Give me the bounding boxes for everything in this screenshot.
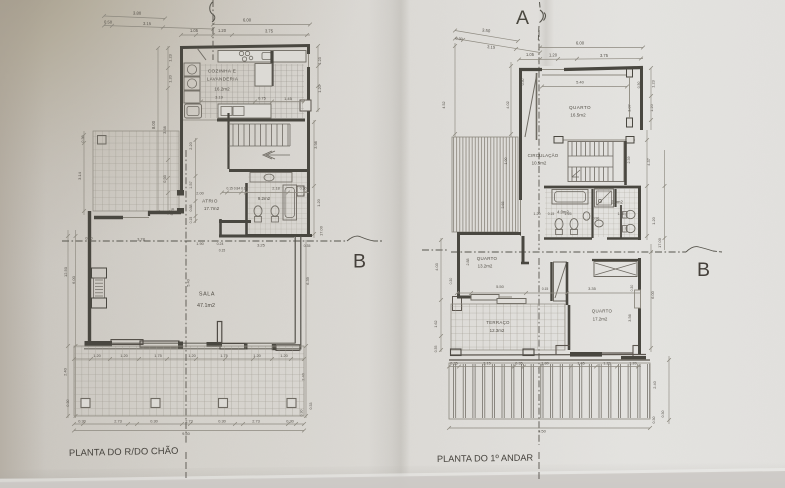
svg-text:0.93: 0.93 <box>162 175 167 183</box>
svg-text:0.24: 0.24 <box>217 242 224 246</box>
svg-text:0.30: 0.30 <box>455 37 463 42</box>
svg-text:1.20: 1.20 <box>316 198 321 206</box>
svg-text:3.50: 3.50 <box>482 28 491 34</box>
svg-text:3.15: 3.15 <box>483 362 490 366</box>
svg-text:12.50: 12.50 <box>63 266 68 277</box>
svg-text:3.15: 3.15 <box>487 44 496 50</box>
svg-text:QUARTO: QUARTO <box>592 309 613 314</box>
svg-text:9.2m2: 9.2m2 <box>258 196 271 201</box>
svg-text:3.07: 3.07 <box>628 104 632 111</box>
svg-text:0.15 0.84 0.15: 0.15 0.84 0.15 <box>226 187 247 191</box>
svg-text:1.75: 1.75 <box>220 353 228 358</box>
svg-text:TERRAÇO: TERRAÇO <box>486 320 510 325</box>
svg-text:12.3m2: 12.3m2 <box>490 328 505 333</box>
svg-text:3.80: 3.80 <box>133 10 142 15</box>
svg-text:1.20: 1.20 <box>651 216 656 224</box>
svg-text:1.20: 1.20 <box>629 362 636 366</box>
svg-text:0.15: 0.15 <box>219 249 226 253</box>
svg-text:1.45: 1.45 <box>284 96 293 101</box>
svg-text:17.7m2: 17.7m2 <box>204 206 220 211</box>
svg-text:1.20: 1.20 <box>549 53 558 58</box>
svg-text:1.20: 1.20 <box>533 212 540 216</box>
svg-text:1.62: 1.62 <box>434 320 438 327</box>
svg-text:3.75: 3.75 <box>600 53 609 58</box>
svg-text:1.20: 1.20 <box>603 362 610 366</box>
svg-text:B: B <box>697 259 710 281</box>
svg-text:1.23: 1.23 <box>168 54 173 62</box>
svg-text:1.57: 1.57 <box>189 181 193 188</box>
svg-text:3.98: 3.98 <box>313 141 318 149</box>
svg-text:17.00: 17.00 <box>319 225 324 236</box>
svg-text:1.20: 1.20 <box>93 353 101 358</box>
svg-text:2.0m2: 2.0m2 <box>611 200 623 205</box>
svg-text:0.30: 0.30 <box>300 187 307 191</box>
svg-text:2.39: 2.39 <box>627 157 631 164</box>
svg-text:10.5m2: 10.5m2 <box>532 161 547 166</box>
svg-text:1.25: 1.25 <box>564 212 571 216</box>
svg-text:COZINHA E: COZINHA E <box>208 69 236 74</box>
svg-text:1.45: 1.45 <box>577 362 584 366</box>
svg-text:2.73: 2.73 <box>114 419 122 424</box>
svg-text:1.20: 1.20 <box>168 74 173 82</box>
svg-text:0.30: 0.30 <box>630 285 634 292</box>
svg-text:6.39: 6.39 <box>305 277 310 285</box>
svg-text:4.52: 4.52 <box>442 101 446 108</box>
svg-text:13.2m2: 13.2m2 <box>478 264 493 269</box>
svg-text:3.14: 3.14 <box>77 171 82 180</box>
svg-text:0.15: 0.15 <box>189 217 193 224</box>
svg-text:0.30: 0.30 <box>150 419 158 424</box>
svg-text:CIRCULAÇÃO: CIRCULAÇÃO <box>528 153 559 158</box>
svg-text:1.20: 1.20 <box>317 84 322 92</box>
svg-text:A: A <box>516 7 529 29</box>
svg-text:4.03: 4.03 <box>434 263 439 271</box>
svg-text:0.30: 0.30 <box>218 419 226 424</box>
svg-text:2.18: 2.18 <box>272 187 279 191</box>
svg-text:QUARTO: QUARTO <box>569 105 591 110</box>
svg-text:0.30: 0.30 <box>652 417 656 424</box>
svg-text:2.73: 2.73 <box>252 419 260 424</box>
svg-text:8.00: 8.00 <box>151 120 156 129</box>
svg-text:B: B <box>353 251 366 273</box>
svg-text:6.00: 6.00 <box>71 275 76 284</box>
svg-text:0.90: 0.90 <box>593 217 600 221</box>
svg-text:17.00: 17.00 <box>657 237 662 248</box>
svg-text:6.00: 6.00 <box>243 18 252 23</box>
svg-text:3.35: 3.35 <box>588 286 597 291</box>
svg-text:9.50: 9.50 <box>538 429 547 434</box>
svg-text:16.2m2: 16.2m2 <box>214 87 230 92</box>
svg-text:3.56: 3.56 <box>628 314 632 321</box>
svg-text:3.78: 3.78 <box>137 237 146 242</box>
svg-text:16.5m2: 16.5m2 <box>570 113 586 118</box>
svg-text:6.00: 6.00 <box>576 41 585 46</box>
svg-text:0.15: 0.15 <box>542 287 549 291</box>
svg-text:0.30: 0.30 <box>521 79 525 86</box>
svg-text:1.55: 1.55 <box>618 212 625 216</box>
svg-text:0.33: 0.33 <box>309 403 313 410</box>
svg-text:2.20: 2.20 <box>189 142 193 149</box>
svg-text:0.30: 0.30 <box>78 419 86 424</box>
svg-text:1.80: 1.80 <box>541 362 548 366</box>
svg-text:0.30: 0.30 <box>81 135 85 142</box>
svg-text:2.88: 2.88 <box>466 259 470 266</box>
svg-text:1.05: 1.05 <box>190 28 199 33</box>
svg-text:3.15: 3.15 <box>143 21 152 26</box>
svg-text:0.30: 0.30 <box>661 411 665 418</box>
svg-text:5.40: 5.40 <box>576 80 585 85</box>
svg-text:0.35: 0.35 <box>304 244 311 248</box>
svg-text:0.30: 0.30 <box>449 278 453 285</box>
svg-text:47.1m2: 47.1m2 <box>197 303 215 309</box>
svg-text:PLANTA DO R/DO CHÃO: PLANTA DO R/DO CHÃO <box>69 445 179 458</box>
svg-text:0.30: 0.30 <box>85 237 92 241</box>
svg-text:3.19: 3.19 <box>215 95 224 100</box>
svg-text:0.88: 0.88 <box>189 205 193 212</box>
svg-text:1.20: 1.20 <box>280 353 288 358</box>
svg-text:1.23: 1.23 <box>317 57 322 65</box>
svg-text:1.00: 1.00 <box>504 158 508 165</box>
svg-text:1.20: 1.20 <box>649 103 654 111</box>
svg-text:2.40: 2.40 <box>652 380 657 388</box>
svg-text:1.20: 1.20 <box>253 353 261 358</box>
svg-text:1.90: 1.90 <box>196 242 203 246</box>
svg-text:QUARTO: QUARTO <box>477 256 498 261</box>
svg-text:1.05: 1.05 <box>526 52 535 57</box>
svg-text:2.00: 2.00 <box>196 192 203 196</box>
svg-text:5.50: 5.50 <box>496 284 505 289</box>
svg-text:1.20: 1.20 <box>188 353 196 358</box>
svg-text:4.02: 4.02 <box>505 101 510 109</box>
svg-text:1.75: 1.75 <box>154 353 162 358</box>
svg-text:0.35: 0.35 <box>515 362 522 366</box>
svg-text:0.35: 0.35 <box>450 362 457 366</box>
svg-text:1.20: 1.20 <box>120 353 128 358</box>
svg-text:0.15: 0.15 <box>548 212 555 216</box>
svg-text:0.30: 0.30 <box>66 399 70 406</box>
svg-text:3.68: 3.68 <box>501 202 505 209</box>
svg-text:2.40: 2.40 <box>63 367 68 376</box>
svg-text:LAVANDERIA: LAVANDERIA <box>207 77 239 82</box>
svg-text:3.58: 3.58 <box>162 126 167 134</box>
svg-text:1.20: 1.20 <box>218 28 227 33</box>
svg-text:17.2m2: 17.2m2 <box>593 317 608 322</box>
svg-text:0.30: 0.30 <box>286 419 294 424</box>
svg-text:0.50: 0.50 <box>104 19 113 24</box>
svg-text:3.75: 3.75 <box>265 29 274 34</box>
svg-text:SALA: SALA <box>199 292 215 298</box>
svg-text:0.75: 0.75 <box>258 96 267 101</box>
svg-text:3.25: 3.25 <box>257 243 266 248</box>
svg-text:0.35: 0.35 <box>434 346 438 353</box>
svg-text:ATRIO: ATRIO <box>202 199 218 204</box>
svg-text:PLANTA DO 1º ANDAR: PLANTA DO 1º ANDAR <box>437 453 534 464</box>
